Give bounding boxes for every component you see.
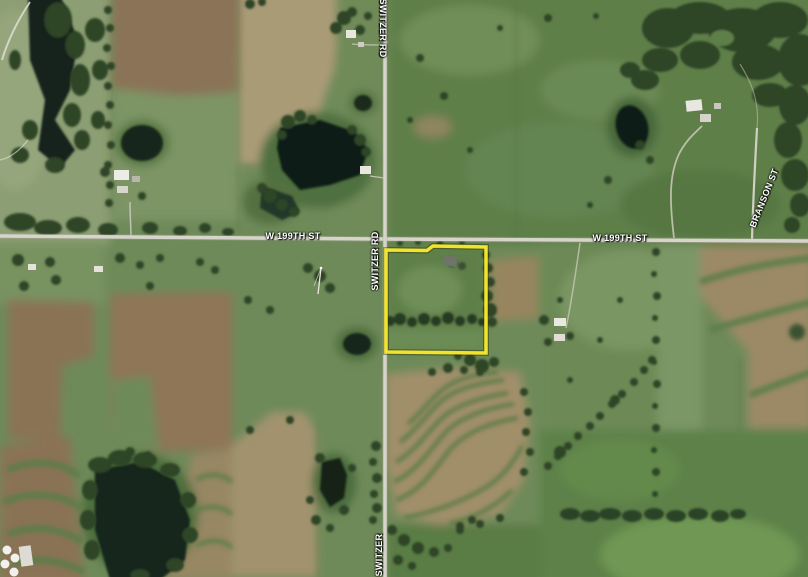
map-canvas[interactable]: SWITZER RD SWITZER RD SWITZER W 199TH ST…	[0, 0, 808, 577]
satellite-imagery	[0, 0, 808, 577]
